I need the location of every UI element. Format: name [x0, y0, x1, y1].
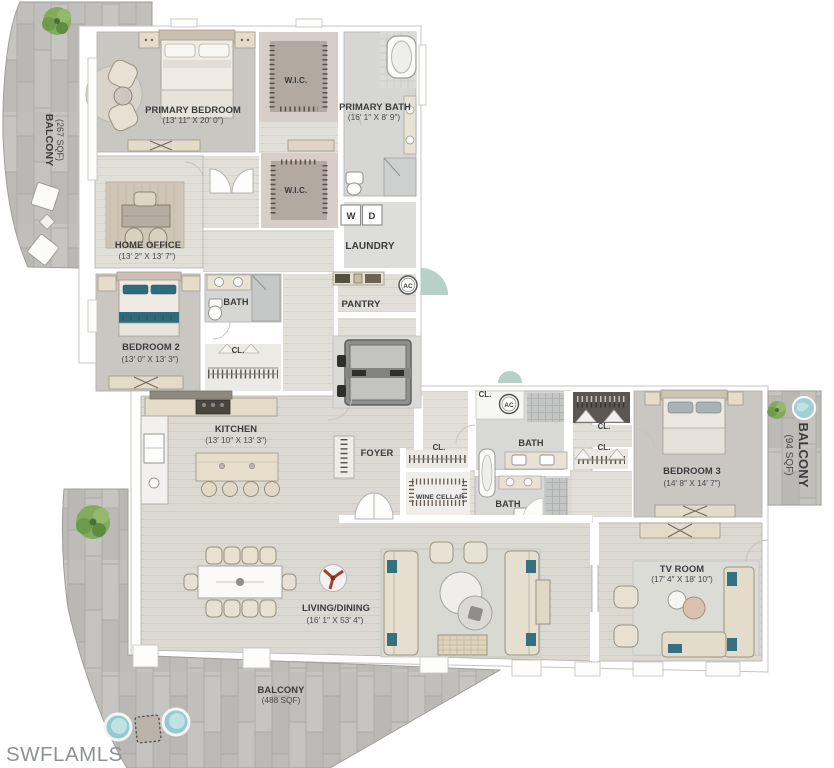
svg-text:BEDROOM 3: BEDROOM 3 — [663, 465, 721, 476]
svg-text:D: D — [369, 211, 376, 222]
svg-text:FOYER: FOYER — [361, 447, 394, 458]
svg-text:TV ROOM: TV ROOM — [660, 563, 705, 574]
svg-text:PANTRY: PANTRY — [342, 299, 381, 310]
svg-text:W.I.C.: W.I.C. — [285, 186, 308, 195]
svg-text:KITCHEN: KITCHEN — [215, 423, 257, 434]
svg-text:CL.: CL. — [598, 422, 611, 431]
svg-text:(13′ 11″ X 20′ 0″): (13′ 11″ X 20′ 0″) — [163, 115, 224, 125]
svg-text:(488 SQF): (488 SQF) — [262, 695, 301, 705]
svg-text:AC: AC — [504, 402, 514, 409]
svg-text:(16′ 1″ X 53′ 4″): (16′ 1″ X 53′ 4″) — [307, 615, 364, 625]
svg-text:CL.: CL. — [479, 390, 492, 399]
svg-text:CL.: CL. — [598, 443, 611, 452]
svg-text:BALCONY: BALCONY — [257, 684, 305, 695]
svg-text:(14′ 8″ X 14′ 7″): (14′ 8″ X 14′ 7″) — [664, 478, 721, 488]
svg-text:HOME OFFICE: HOME OFFICE — [115, 239, 181, 250]
svg-text:SWFLAMLS: SWFLAMLS — [6, 743, 123, 766]
svg-text:W: W — [346, 211, 355, 222]
svg-text:LIVING/DINING: LIVING/DINING — [302, 602, 370, 613]
svg-text:CL.: CL. — [232, 346, 245, 355]
svg-text:BALCONY: BALCONY — [43, 114, 55, 167]
svg-text:(13′ 10″ X 13′ 3″): (13′ 10″ X 13′ 3″) — [205, 435, 267, 445]
svg-text:(267 SQF): (267 SQF) — [55, 119, 65, 161]
svg-text:PRIMARY BATH: PRIMARY BATH — [339, 101, 411, 112]
svg-text:BATH: BATH — [495, 499, 520, 509]
svg-text:LAUNDRY: LAUNDRY — [345, 241, 394, 252]
svg-text:PRIMARY BEDROOM: PRIMARY BEDROOM — [145, 104, 241, 115]
svg-text:(16′ 1″ X 8′ 9″): (16′ 1″ X 8′ 9″) — [348, 112, 401, 122]
svg-text:BALCONY: BALCONY — [796, 423, 811, 488]
svg-text:WINE CELLAR: WINE CELLAR — [416, 494, 464, 501]
svg-text:CL.: CL. — [433, 443, 446, 452]
svg-text:BATH: BATH — [223, 297, 248, 307]
svg-text:(13′ 0″ X 13′ 3″): (13′ 0″ X 13′ 3″) — [122, 354, 179, 364]
svg-text:(13′ 2″ X 13′ 7″): (13′ 2″ X 13′ 7″) — [119, 251, 176, 261]
svg-text:BATH: BATH — [518, 438, 543, 448]
svg-text:W.I.C.: W.I.C. — [285, 76, 308, 85]
svg-text:(94 SQF): (94 SQF) — [783, 434, 794, 475]
svg-text:BEDROOM 2: BEDROOM 2 — [122, 341, 180, 352]
svg-text:AC: AC — [403, 283, 413, 290]
svg-text:(17′ 4″ X 18′ 10″): (17′ 4″ X 18′ 10″) — [651, 574, 713, 584]
